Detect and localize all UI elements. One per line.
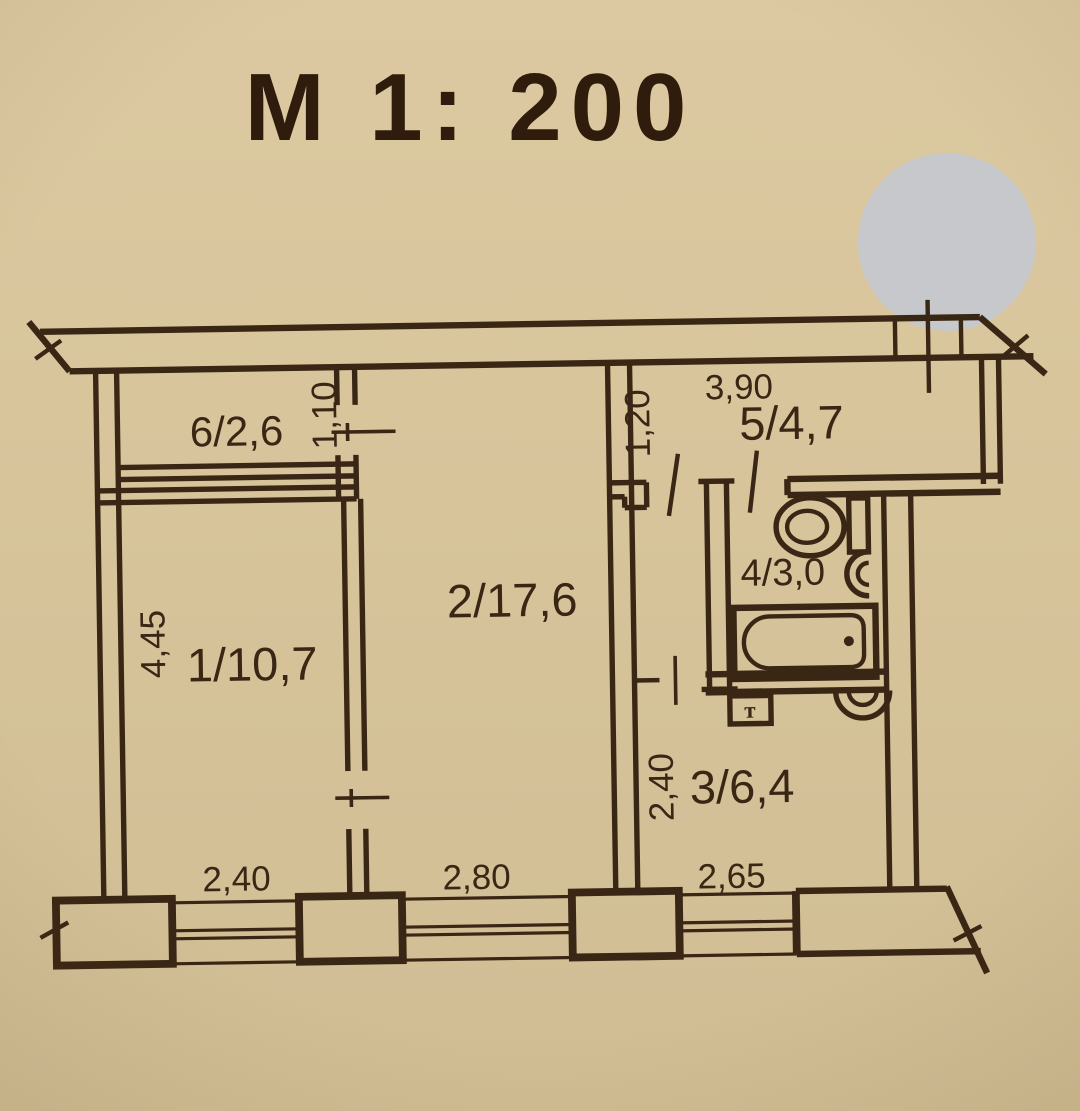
room5-bottom-wall [787, 476, 1000, 495]
room2-label: 2/17,6 [446, 572, 578, 627]
room6-label: 6/2,6 [189, 407, 283, 455]
toilet-bowl-inner [787, 510, 827, 543]
stamp-circle [858, 153, 1036, 331]
top-wall-divider-2 [961, 317, 962, 357]
top-wall-outer-line [40, 317, 980, 332]
sink-inner [858, 563, 869, 585]
toilet-icon [776, 497, 869, 556]
outer-wall-top [29, 298, 1046, 407]
bottom-wall [40, 886, 987, 988]
scale-title: М 1: 200 [245, 54, 696, 161]
dim-4-45: 4,45 [133, 610, 173, 679]
window-right [679, 893, 797, 956]
bottom-right-break-line [947, 886, 987, 974]
bathroom-sink-icon [847, 552, 870, 596]
dim-window-2-65: 2,65 [697, 856, 766, 896]
pier-2 [299, 895, 403, 962]
pier-3 [572, 891, 680, 958]
room6-bottom-wall [118, 464, 356, 480]
room4-label: 4/3,0 [740, 552, 825, 595]
dim-2-40-room3: 2,40 [642, 753, 682, 822]
window-left [172, 901, 300, 964]
towel-dryer-icon: т [730, 695, 771, 724]
top-wall-axis-tick [928, 300, 929, 393]
dim-1-10: 1,10 [305, 381, 345, 450]
plan-geometry: т 1/10,7 2/17,6 3/6,4 4/3,0 5/4,7 6/2,6 … [29, 298, 1055, 988]
room1-label: 1/10,7 [186, 636, 318, 691]
room1-door-tick [335, 788, 389, 807]
bathtub-drain [844, 636, 854, 646]
floor-plan-drawing: М 1: 200 [0, 0, 1080, 1111]
room3-door-tick [675, 656, 676, 705]
bathroom-door-tick [749, 451, 758, 513]
dim-1-20: 1,20 [618, 389, 658, 458]
dim-window-2-80: 2,80 [442, 857, 511, 897]
room3-label: 3/6,4 [689, 759, 794, 814]
top-wall-inner-line [70, 356, 1034, 371]
toilet-tank [849, 498, 869, 552]
dim-window-2-40: 2,40 [202, 859, 271, 899]
bathtub-icon [733, 606, 876, 679]
top-wall-divider-1 [895, 318, 896, 358]
window-middle [402, 897, 573, 961]
outer-wall-left [96, 371, 125, 900]
room3-sink-icon [836, 691, 890, 719]
hall-wall-jamb [610, 482, 646, 508]
dim-3-90: 3,90 [705, 367, 774, 407]
scanned-floor-plan-page: М 1: 200 [0, 0, 1080, 1111]
left-wall-lines [96, 371, 125, 900]
room5-right-wall [981, 357, 1000, 484]
room1-room2-wall [344, 499, 367, 896]
room1-top-wall [97, 487, 356, 503]
pier-1 [56, 899, 173, 966]
towel-dryer-letter: т [744, 698, 756, 723]
hall-door-tick [668, 454, 679, 516]
